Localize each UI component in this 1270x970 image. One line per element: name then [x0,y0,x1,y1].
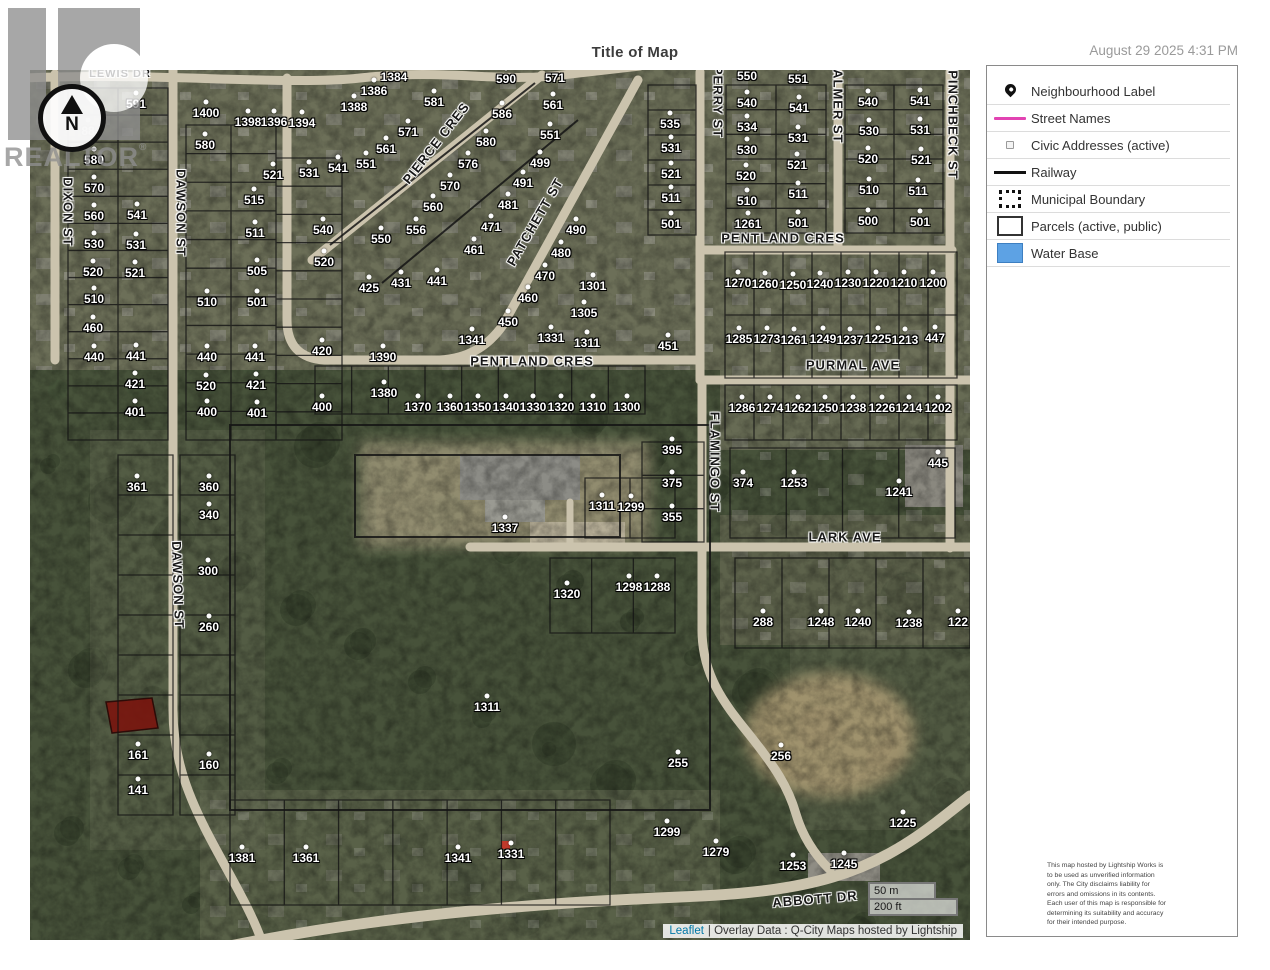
civic-address-dot [936,395,941,400]
parcel-number: 445 [928,456,948,470]
parcel-number: 1202 [925,401,952,415]
parcel-number: 440 [197,350,217,364]
parcel-number: 480 [551,246,571,260]
street-label-perry-st: PERRY ST [711,70,726,138]
parcel-number: 1370 [405,400,432,414]
parcel-number: 1394 [289,116,316,130]
civic-address-dot [919,147,924,152]
civic-address-dot [92,231,97,236]
parcel-number: 1245 [831,857,858,871]
scale-metric: 50 m [868,882,936,898]
parcel-number: 447 [925,331,945,345]
parcel-number: 550 [737,70,757,83]
civic-address-dot [897,479,902,484]
street-label-dawson-st: DAWSON ST [169,541,187,629]
parcel-number: 122 [948,615,968,629]
parcel-number: 531 [126,238,146,252]
civic-address-dot [745,90,750,95]
civic-address-dot [414,217,419,222]
parcel-number: 541 [789,101,809,115]
parcel-number: 1360 [437,400,464,414]
disclaimer-text: This map hosted by Lightship Works is to… [1047,861,1169,928]
parcel-number: 520 [314,255,334,269]
civic-address-dot [796,210,801,215]
civic-address-dot [874,270,879,275]
civic-address-dot [625,394,630,399]
parcel-number: 505 [247,264,267,278]
parcel-number: 441 [427,274,447,288]
parcel-number: 511 [788,187,807,201]
parcel-number: 580 [84,153,104,167]
parcel-number: 1384 [381,70,408,84]
civic-address-dot [551,92,556,97]
parcel-number: 1200 [920,276,947,290]
civic-address-dot [867,177,872,182]
parcel-number: 1301 [580,279,607,293]
rail-swatch [994,171,1026,174]
civic-address-dot [916,178,921,183]
civic-address-dot [206,558,211,563]
parcel-number: 1225 [890,816,917,830]
civic-address-dot [255,258,260,263]
scale-bar: 50 m 200 ft [868,882,958,916]
parcel-number: 520 [736,169,756,183]
parcel-number: 530 [737,143,757,157]
civic-address-dot [907,395,912,400]
legend-label: Street Names [1031,111,1110,126]
civic-address-dot [336,155,341,160]
parcel-number: 340 [199,508,219,522]
civic-address-dot [745,188,750,193]
civic-address-dot [133,399,138,404]
civic-address-dot [500,101,505,106]
civic-address-dot [796,70,801,71]
civic-address-dot [746,211,751,216]
civic-address-dot [768,395,773,400]
civic-address-dot [399,270,404,275]
street-swatch [994,117,1026,120]
street-label-pierce-cres: PIERCE CRES [400,99,473,186]
parcel-number: 1286 [729,401,756,415]
civic-address-dot [531,394,536,399]
parcel-number: 1250 [780,278,807,292]
civic-address-dot [902,270,907,275]
parcel-number: 460 [518,291,538,305]
parcel-number: 1350 [465,400,492,414]
parcel-number: 1320 [554,587,581,601]
civic-address-dot [91,315,96,320]
legend-item-municipal-boundary: Municipal Boundary [987,186,1230,213]
civic-address-dot [432,89,437,94]
civic-address-dot [655,574,660,579]
parcel-number: 1225 [865,332,892,346]
civic-address-dot [761,609,766,614]
civic-address-dot [246,109,251,114]
civic-address-dot [918,88,923,93]
parcel-number: 1311 [589,499,615,513]
civic-address-dot [670,504,675,509]
parcel-number: 1285 [726,332,753,346]
civic-address-dot [255,400,260,405]
parcel-number: 1337 [492,521,519,535]
civic-address-dot [676,750,681,755]
civic-address-dot [431,194,436,199]
civic-address-dot [135,202,140,207]
parcel-number: 551 [540,128,560,142]
civic-address-dot [253,220,258,225]
civic-address-dot [765,326,770,331]
parcel-number: 520 [196,379,216,393]
civic-address-dot [521,170,526,175]
parcel-number: 361 [127,480,147,494]
civic-address-dot [476,394,481,399]
parcel-number: 561 [543,98,563,112]
civic-address-dot [472,237,477,242]
parcel-number: 521 [911,153,931,167]
legend-list: Neighbourhood LabelStreet NamesCivic Add… [987,78,1230,267]
page: Title of Map August 29 2025 4:31 PM [0,0,1270,970]
civic-address-dot [435,268,440,273]
street-label-abbott-dr: ABBOTT DR [772,888,859,910]
civic-address-dot [792,327,797,332]
civic-address-dot [744,163,749,168]
street-label-pentland-cres: PENTLAND CRES [721,231,845,246]
map-pin-icon [1002,81,1018,97]
civic-address-dot [448,394,453,399]
parcel-number: 551 [788,72,808,86]
parcel-number: 1288 [644,580,671,594]
civic-address-dot [538,150,543,155]
parcel-number: 471 [481,220,501,234]
civic-address-dot [484,129,489,134]
parcel-number: 1310 [580,400,607,414]
parcel-number: 481 [498,198,518,212]
page-title: Title of Map [0,44,1270,61]
civic-address-dot [304,845,309,850]
civic-address-dot [253,344,258,349]
legend-label: Municipal Boundary [1031,192,1145,207]
civic-address-dot [574,217,579,222]
civic-address-dot [470,327,475,332]
parcel-number: 521 [787,158,807,172]
civic-address-dot [669,185,674,190]
parcel-number: 1305 [571,306,598,320]
parcel-number: 1220 [863,276,890,290]
street-label-purmal-ave: PURMAL AVE [806,358,900,373]
parcel-number: 395 [662,443,682,457]
parcel-number: 1388 [341,100,368,114]
civic-address-dot [792,470,797,475]
civic-address-dot [549,325,554,330]
parcel-number: 1341 [445,851,472,865]
civic-address-dot [740,395,745,400]
parcel-number: 540 [737,96,757,110]
parcel-number: 1398 [235,115,262,129]
parcel-number: 531 [910,123,930,137]
parcel-number: 1330 [520,400,547,414]
parcel-number: 421 [246,378,266,392]
civic-address-dot [796,395,801,400]
civic-address-dot [92,344,97,349]
parcel-number: 510 [859,183,879,197]
parcel-number: 1320 [548,400,575,414]
parcel-number: 560 [84,209,104,223]
civic-address-dot [136,777,141,782]
civic-address-dot [669,211,674,216]
parcel-number: 1340 [493,400,520,414]
parcel-number: 421 [125,377,145,391]
legend-label: Railway [1031,165,1077,180]
civic-address-dot [416,394,421,399]
parcel-number: 1240 [845,615,872,629]
civic-address-dot [745,114,750,119]
civic-address-dot [666,333,671,338]
legend-label: Neighbourhood Label [1031,84,1155,99]
civic-address-dot [818,271,823,276]
street-label-flamingo-st: FLAMINGO ST [708,412,723,513]
civic-address-dot [842,851,847,856]
parcel-number: 401 [125,405,145,419]
civic-address-dot [876,326,881,331]
civic-address-dot [307,160,312,165]
street-label-lark-ave: LARK AVE [809,530,882,545]
civic-address-dot [791,272,796,277]
civic-address-dot [629,494,634,499]
civic-address-dot [207,502,212,507]
parcel-number: 534 [737,120,757,134]
parcel-number: 511 [661,191,680,205]
civic-address-dot [271,162,276,167]
parcel-number: 530 [84,237,104,251]
attribution-text: | Overlay Data : Q-City Maps hosted by L… [708,925,957,937]
civic-address-dot [207,614,212,619]
parcel-number: 551 [356,157,376,171]
parcel-number: 1331 [498,847,525,861]
parcel-number: 161 [128,748,148,762]
parcel-number: 400 [312,400,332,414]
parcel-number: 591 [126,97,146,111]
civic-address-dot [559,394,564,399]
civic-address-dot [204,100,209,105]
parcel-number: 1331 [538,331,565,345]
legend-label: Parcels (active, public) [1031,219,1162,234]
parcel-number: 510 [197,295,217,309]
parcel-number: 470 [535,269,555,283]
civic-address-dot [456,845,461,850]
legend-label: Civic Addresses (active) [1031,138,1170,153]
parcel-number: 541 [328,161,348,175]
parcel-number: 560 [423,200,443,214]
civic-address-dot [381,344,386,349]
parcel-number: 1273 [754,332,781,346]
parcel-number: 260 [199,620,219,634]
parcel-number: 440 [84,350,104,364]
parcel-number: 400 [197,405,217,419]
parcel-number: 1260 [752,277,779,291]
civic-address-dot [866,146,871,151]
parcel-number: 1400 [193,106,220,120]
parcel-number: 580 [195,138,215,152]
civic-address-dot [736,270,741,275]
leaflet-link[interactable]: Leaflet [669,925,704,937]
civic-address-dot [322,249,327,254]
civic-address-dot [92,147,97,152]
civic-address-dot [918,117,923,122]
civic-address-dot [823,395,828,400]
parcel-number: 1261 [735,217,762,231]
parcel-number: 1214 [896,401,923,415]
civic-address-dot [548,122,553,127]
civic-address-dot [372,78,377,83]
parcel-number: 441 [245,350,265,364]
north-arrow-icon [61,95,83,114]
parcel-swatch [997,216,1023,236]
parcel-number: 1238 [840,401,867,415]
parcel-number: 491 [513,176,533,190]
parcel-number: 1253 [781,476,808,490]
civic-address-dot [901,810,906,815]
parcel-number: 1241 [886,485,913,499]
civic-address-dot [382,380,387,385]
civic-address-dot [252,187,257,192]
north-compass: N [38,84,106,152]
parcel-number: 531 [788,131,808,145]
parcel-number: 520 [858,152,878,166]
parcel-number: 1240 [807,277,834,291]
parcel-number: 1249 [810,332,837,346]
civic-address-dot [92,286,97,291]
parcel-number: 1270 [725,276,752,290]
parcel-number: 520 [83,265,103,279]
parcel-number: 1230 [835,276,862,290]
civic-address-dot [133,371,138,376]
civic-address-dot [321,217,326,222]
civic-address-dot [134,91,139,96]
civic-address-dot [933,325,938,330]
civic-address-dot [737,326,742,331]
map-canvas[interactable]: LEWIS DRDIXON STDAWSON STPIERCE CRESPATC… [30,70,970,940]
civic-address-dot [504,394,509,399]
street-label-palmer-st: PALMER ST [831,70,846,144]
civic-address-dot [918,209,923,214]
parcel-number: 540 [313,223,333,237]
civic-address-dot [300,110,305,115]
civic-address-dot [489,214,494,219]
civic-address-dot [856,609,861,614]
parcel-number: 510 [737,194,757,208]
parcel-number: 160 [199,758,219,772]
civic-address-dot [866,89,871,94]
civic-address-dot [668,111,673,116]
civic-address-dot [364,151,369,156]
parcel-number: 1386 [361,84,388,98]
civic-swatch [1006,141,1014,149]
civic-address-dot [91,259,96,264]
parcel-number: 490 [566,223,586,237]
civic-address-dot [509,841,514,846]
parcel-number: 531 [661,141,681,155]
civic-address-dot [466,151,471,156]
parcel-number: 521 [125,266,145,280]
civic-address-dot [821,326,826,331]
parcel-number: 550 [371,232,391,246]
civic-address-dot [559,240,564,245]
legend-label: Water Base [1031,246,1098,261]
civic-address-dot [797,95,802,100]
civic-address-dot [819,609,824,614]
civic-address-dot [367,275,372,280]
parcel-number: 355 [662,510,682,524]
parcel-number: 571 [545,71,565,85]
civic-address-dot [907,610,912,615]
civic-address-dot [352,94,357,99]
parcel-number: 425 [359,281,379,295]
civic-address-dot [92,203,97,208]
parcel-number: 1238 [896,616,923,630]
parcel-number: 1380 [371,386,398,400]
parcel-number: 1299 [654,825,681,839]
parcel-number: 510 [84,292,104,306]
civic-address-dot [848,327,853,332]
civic-address-dot [134,343,139,348]
parcel-number: 1279 [703,845,730,859]
street-label-lewis-dr: LEWIS DR [89,70,151,80]
parcel-number: 1213 [892,333,919,347]
civic-address-dot [846,270,851,275]
civic-address-dot [406,119,411,124]
parcel-number: 581 [424,95,444,109]
parcel-number: 461 [464,243,484,257]
civic-address-dot [565,581,570,586]
civic-address-dot [203,132,208,137]
parcel-number: 1311 [474,700,500,714]
legend-item-water-base: Water Base [987,240,1230,267]
legend-item-railway: Railway [987,159,1230,186]
civic-address-dot [763,271,768,276]
street-label-dawson-st: DAWSON ST [174,169,189,257]
civic-address-dot [796,125,801,130]
civic-address-dot [956,609,961,614]
civic-address-dot [585,330,590,335]
legend-item-parcels-active-public-: Parcels (active, public) [987,213,1230,240]
street-label-pinchbeck-st: PINCHBECK ST [946,70,961,180]
parcel-number: 561 [376,142,396,156]
civic-address-dot [903,327,908,332]
parcel-number: 1396 [261,115,288,129]
civic-address-dot [670,437,675,442]
parcel-number: 571 [398,125,418,139]
parcel-number: 1274 [757,401,784,415]
parcel-number: 1210 [891,276,918,290]
civic-address-dot [866,208,871,213]
parcel-number: 586 [492,107,512,121]
parcel-number: 1299 [618,500,645,514]
civic-address-dot [851,395,856,400]
parcel-number: 515 [244,193,264,207]
legend-panel: Neighbourhood LabelStreet NamesCivic Add… [986,65,1238,937]
parcel-number: 541 [910,94,930,108]
parcel-number: 1311 [574,336,600,350]
civic-address-dot [320,338,325,343]
parcel-number: 1226 [869,401,896,415]
parcel-number: 141 [128,783,148,797]
civic-address-dot [665,819,670,824]
muni-swatch [999,190,1021,208]
parcel-number: 255 [668,756,688,770]
parcel-number: 1248 [808,615,835,629]
parcel-number: 420 [312,344,332,358]
civic-address-dot [627,574,632,579]
